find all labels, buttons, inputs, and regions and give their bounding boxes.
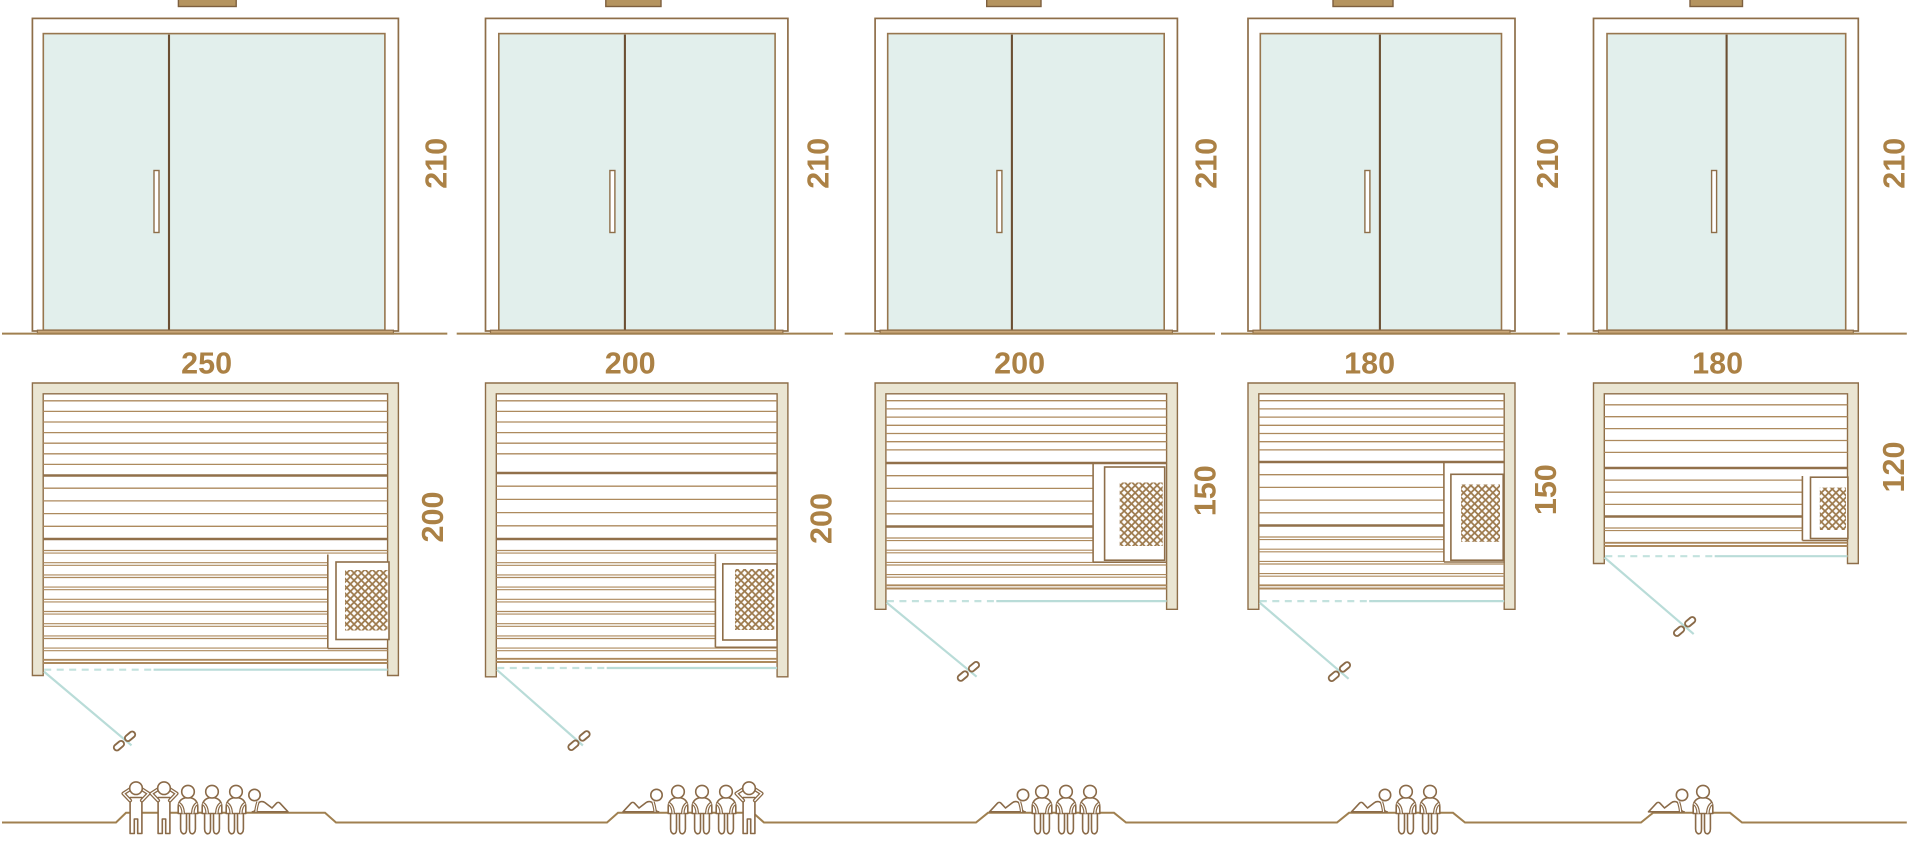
svg-text:200: 200 (605, 347, 656, 381)
svg-text:210: 210 (1190, 138, 1224, 189)
svg-text:210: 210 (801, 138, 835, 189)
svg-text:120: 120 (1877, 442, 1911, 493)
svg-text:180: 180 (1692, 347, 1743, 381)
svg-text:150: 150 (1529, 464, 1563, 515)
svg-text:200: 200 (416, 492, 450, 543)
svg-text:180: 180 (1344, 347, 1395, 381)
svg-text:150: 150 (1189, 465, 1223, 516)
svg-text:250: 250 (181, 347, 232, 381)
svg-text:200: 200 (994, 347, 1045, 381)
svg-text:210: 210 (1531, 138, 1565, 189)
svg-text:210: 210 (420, 138, 454, 189)
svg-text:210: 210 (1878, 138, 1912, 189)
svg-text:200: 200 (805, 493, 839, 544)
